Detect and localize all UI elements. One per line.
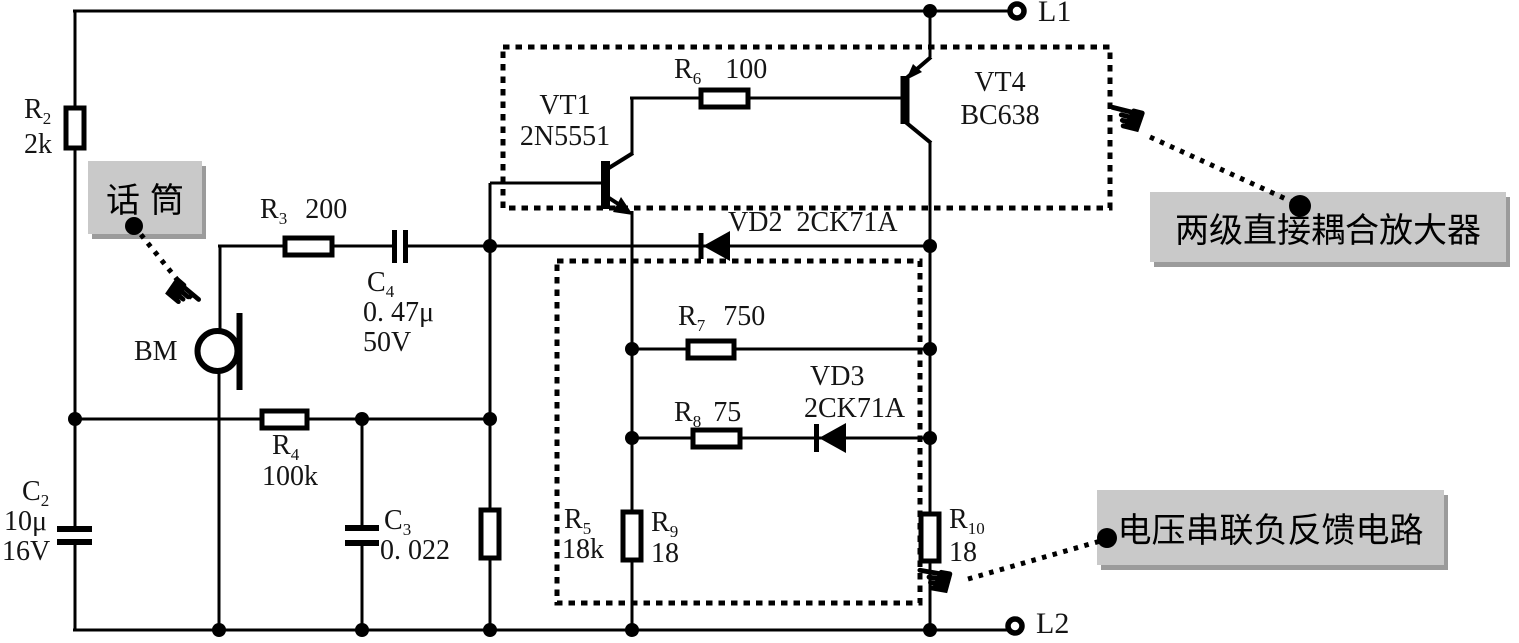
circuit-diagram: 话筒 两级直接耦合放大器 电压串联负反馈电路 bbox=[0, 0, 1519, 643]
label-r9: R9 18 bbox=[651, 507, 679, 569]
terminal-l2 bbox=[1008, 619, 1022, 633]
label-r3: R3200 bbox=[260, 194, 347, 225]
capacitor-c4 bbox=[395, 230, 406, 263]
label-vt1: VT1 2N5551 bbox=[510, 90, 620, 152]
resistor-r7 bbox=[688, 341, 734, 358]
label-r8: R875 bbox=[674, 397, 741, 428]
resistor-r6 bbox=[701, 90, 748, 107]
capacitor-c2 bbox=[57, 529, 92, 542]
pointer-hand-icon-feedback: ☚ bbox=[908, 553, 959, 608]
label-vd2: VD22CK71A bbox=[728, 207, 898, 238]
label-terminal-l2: L2 bbox=[1036, 608, 1069, 639]
resistor-r9 bbox=[623, 512, 641, 560]
diode-vd3 bbox=[817, 423, 847, 453]
resistor-r5 bbox=[481, 510, 499, 558]
resistor-r8 bbox=[693, 430, 740, 447]
resistor-r3 bbox=[285, 238, 332, 255]
microphone-bm bbox=[198, 247, 240, 631]
terminal-l1 bbox=[1010, 4, 1024, 18]
label-c4: C4 0. 47μ 50V bbox=[363, 268, 434, 358]
label-r6: R6100 bbox=[674, 54, 767, 85]
label-terminal-l1: L1 bbox=[1038, 0, 1071, 27]
label-r2: R2 2k bbox=[24, 92, 52, 162]
label-bm: BM bbox=[134, 336, 178, 367]
label-r7: R7750 bbox=[678, 301, 765, 332]
label-vd3: VD3 2CK71A bbox=[804, 361, 905, 425]
capacitor-c3 bbox=[345, 528, 379, 543]
label-c2: C2 10μ 16V bbox=[2, 477, 50, 567]
label-r5: R5 18k bbox=[562, 505, 604, 565]
resistor-r2 bbox=[66, 108, 84, 148]
label-c3: C3 0. 022 bbox=[380, 506, 450, 566]
resistor-r4 bbox=[262, 411, 307, 428]
label-r4: R4 100k bbox=[262, 430, 318, 492]
diode-vd2 bbox=[701, 231, 730, 261]
label-vt4: VT4 BC638 bbox=[948, 66, 1052, 132]
